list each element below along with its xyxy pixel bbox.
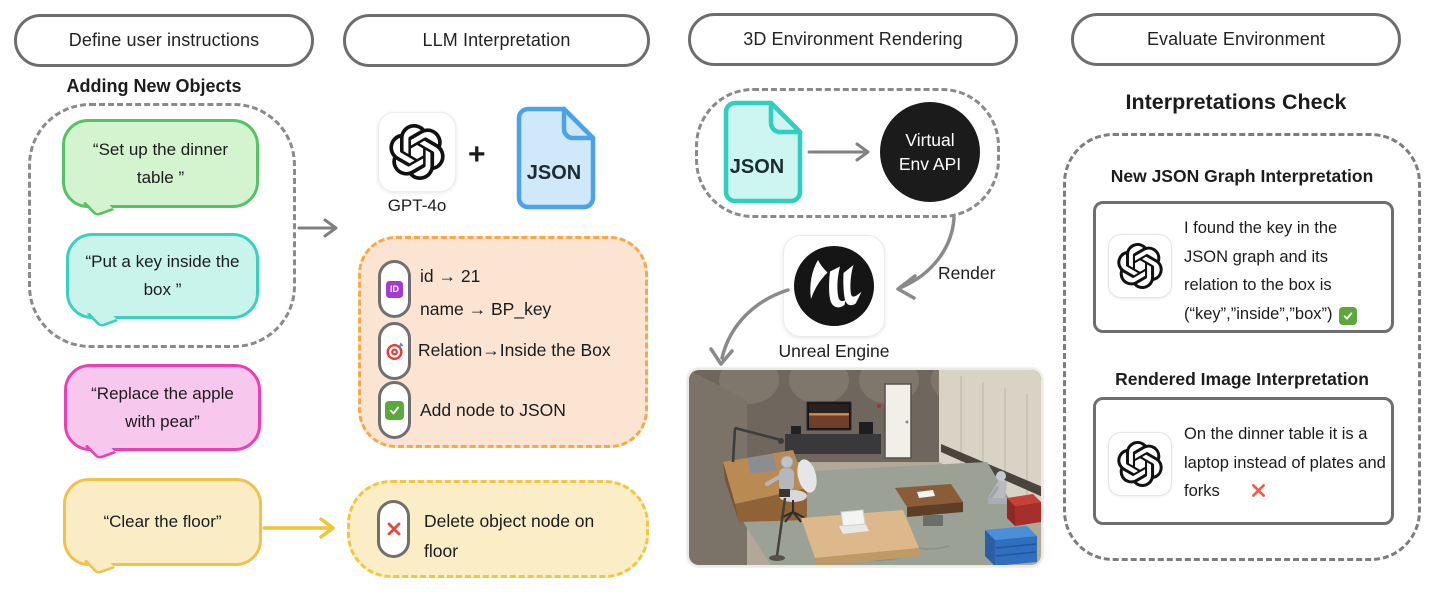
- bubble-text: “Replace the apple with pear”: [81, 380, 244, 436]
- cross-icon: [384, 519, 404, 539]
- check-icon: [385, 401, 404, 420]
- add-check-icon-pill: [378, 381, 411, 439]
- openai-logo-tile: [1108, 234, 1172, 298]
- target-icon: [385, 341, 405, 361]
- delete-cross-icon-pill: [377, 500, 410, 558]
- check-icon: [1339, 307, 1357, 325]
- add-node-line: Add node to JSON: [420, 400, 566, 421]
- json-check-text: I found the key in the JSON graph and it…: [1184, 214, 1384, 328]
- image-check-text: On the dinner table it is a laptop inste…: [1184, 420, 1389, 506]
- instruction-bubble-clear-floor: “Clear the floor”: [63, 478, 262, 566]
- arrow-engine-to-image: [698, 280, 794, 372]
- rendered-room-scene: [689, 370, 1043, 567]
- json-file-icon-teal: [718, 100, 804, 204]
- openai-logo-icon: [1117, 441, 1163, 487]
- rendered-image-interpretation-box: On the dinner table it is a laptop inste…: [1093, 397, 1394, 525]
- adding-new-objects-title: Adding New Objects: [14, 76, 294, 97]
- render-label: Render: [938, 263, 1018, 284]
- instruction-bubble-dinner-table: “Set up the dinner table ”: [62, 119, 259, 208]
- delete-node-line: Delete object node on floor: [424, 506, 604, 566]
- rendered-image-interpretation-heading: Rendered Image Interpretation: [1063, 369, 1421, 390]
- instruction-bubble-key-box: “Put a key inside the box ”: [66, 233, 259, 319]
- openai-logo-icon: [389, 124, 445, 180]
- arrow-clear-floor-to-delete: [262, 516, 346, 540]
- header-3d-environment-rendering: 3D Environment Rendering: [688, 13, 1018, 66]
- header-label: LLM Interpretation: [423, 30, 571, 51]
- bubble-text: “Set up the dinner table ”: [79, 136, 242, 192]
- plus-sign: +: [468, 138, 486, 172]
- header-llm-interpretation: LLM Interpretation: [343, 14, 650, 67]
- bubble-text: “Put a key inside the box ”: [83, 248, 242, 304]
- json-file-label: JSON: [714, 156, 800, 179]
- interpretations-check-title: Interpretations Check: [1071, 90, 1401, 115]
- json-graph-interpretation-box: I found the key in the JSON graph and it…: [1093, 201, 1394, 333]
- openai-logo-tile: [1108, 432, 1172, 496]
- bubble-tail: [84, 554, 116, 575]
- relation-icon-pill: [378, 322, 411, 380]
- json-graph-interpretation-heading: New JSON Graph Interpretation: [1063, 166, 1421, 187]
- json-file-icon-blue: [512, 106, 596, 210]
- gpt4o-logo-tile: [378, 112, 456, 192]
- unreal-engine-logo: [788, 240, 880, 332]
- arrow-instructions-to-llm: [296, 216, 346, 240]
- relation-line: Relation→Inside the Box: [418, 340, 611, 361]
- arrow-json-to-api: [806, 140, 882, 164]
- openai-logo-icon: [1117, 243, 1163, 289]
- unreal-engine-logo-tile: [783, 235, 885, 337]
- json-file-label: JSON: [512, 162, 596, 185]
- id-line: id → 21: [420, 266, 480, 287]
- api-label-line1: Virtual: [905, 128, 954, 152]
- bubble-tail: [85, 439, 117, 460]
- header-label: Define user instructions: [69, 30, 260, 51]
- header-evaluate-environment: Evaluate Environment: [1071, 13, 1401, 66]
- id-badge-icon: ID: [386, 281, 403, 298]
- instruction-bubble-replace-apple: “Replace the apple with pear”: [64, 364, 261, 451]
- bubble-text: “Clear the floor”: [103, 508, 221, 536]
- id-icon-pill: ID: [378, 260, 411, 318]
- name-line: name → BP_key: [420, 299, 551, 320]
- virtual-env-api-node: Virtual Env API: [880, 102, 980, 202]
- header-label: 3D Environment Rendering: [743, 29, 963, 50]
- header-label: Evaluate Environment: [1147, 29, 1325, 50]
- rendered-room-image: [687, 368, 1043, 567]
- arrow-render: [884, 214, 966, 304]
- interpretation-text: On the dinner table it is a laptop inste…: [1184, 425, 1386, 500]
- pipeline-diagram: Define user instructions LLM Interpretat…: [0, 0, 1440, 601]
- api-label-line2: Env API: [899, 152, 961, 176]
- gpt4o-label: GPT-4o: [370, 196, 464, 216]
- header-define-user-instructions: Define user instructions: [14, 14, 314, 67]
- cross-icon: [1250, 482, 1267, 499]
- interpretation-text: I found the key in the JSON graph and it…: [1184, 219, 1337, 323]
